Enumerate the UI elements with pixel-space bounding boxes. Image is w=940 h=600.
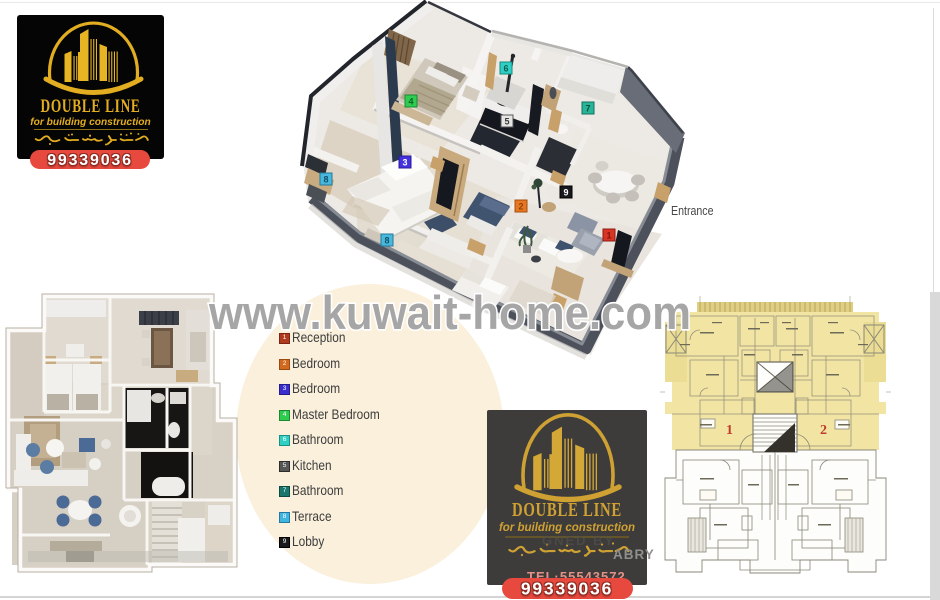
svg-text:www.kuwait-home.com: www.kuwait-home.com — [208, 286, 691, 339]
svg-text:99339036: 99339036 — [47, 152, 133, 169]
svg-text:DOUBLE LINE: DOUBLE LINE — [512, 498, 622, 521]
svg-text:DOUBLE LINE: DOUBLE LINE — [40, 97, 140, 117]
svg-text:for building construction: for building construction — [30, 117, 151, 128]
svg-text:99339036: 99339036 — [521, 579, 613, 599]
